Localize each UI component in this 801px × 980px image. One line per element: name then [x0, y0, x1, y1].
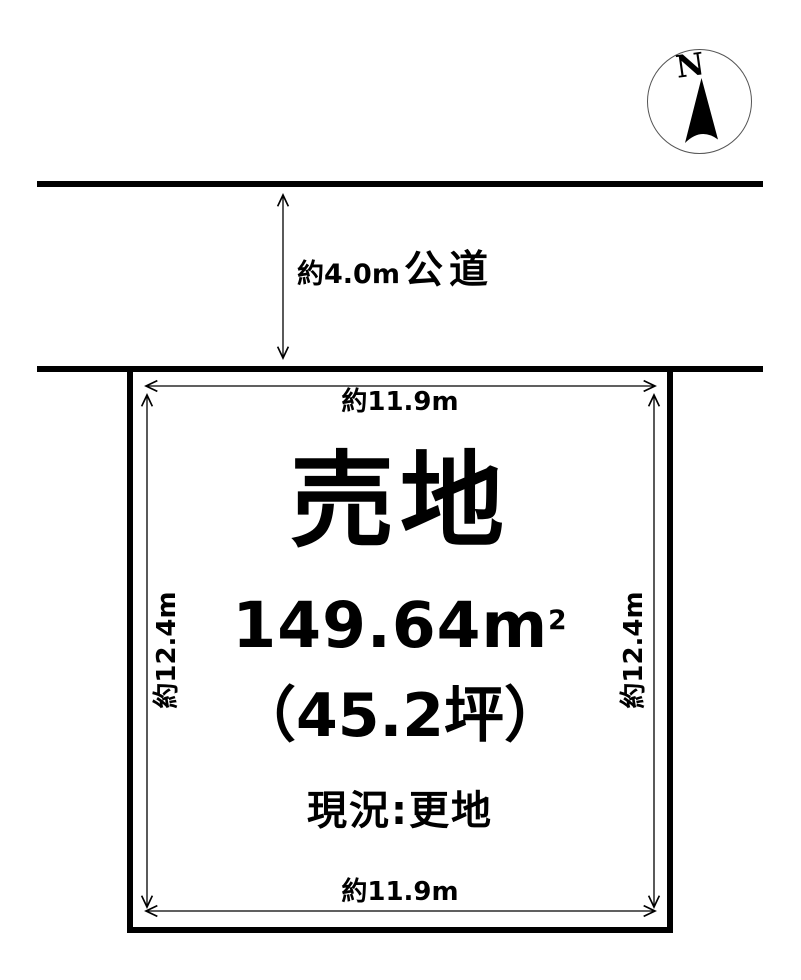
land-plot-diagram: N 約4.0m 公道 売地 149.64m2 （45.2坪） 現況:更地 約11…	[0, 0, 801, 980]
plot-tsubo-label: （45.2坪）	[127, 686, 673, 746]
plot-area-label: 149.64m2	[127, 594, 673, 657]
plot-area-exponent: 2	[548, 605, 567, 636]
plot-title: 売地	[127, 449, 673, 553]
dim-bottom-label: 約11.9m	[127, 879, 673, 905]
dim-top-label: 約11.9m	[127, 389, 673, 415]
dim-right-label: 約12.4m	[621, 591, 647, 708]
plot-area-value: 149.64m	[232, 589, 548, 662]
road-upper-edge	[37, 181, 763, 187]
road-width-label: 約4.0m	[297, 261, 400, 288]
road-name-label: 公道	[404, 251, 494, 290]
compass: N	[647, 49, 752, 154]
compass-needle-icon	[648, 50, 753, 155]
dim-left-label: 約12.4m	[154, 591, 180, 708]
plot-status-label: 現況:更地	[127, 791, 673, 831]
